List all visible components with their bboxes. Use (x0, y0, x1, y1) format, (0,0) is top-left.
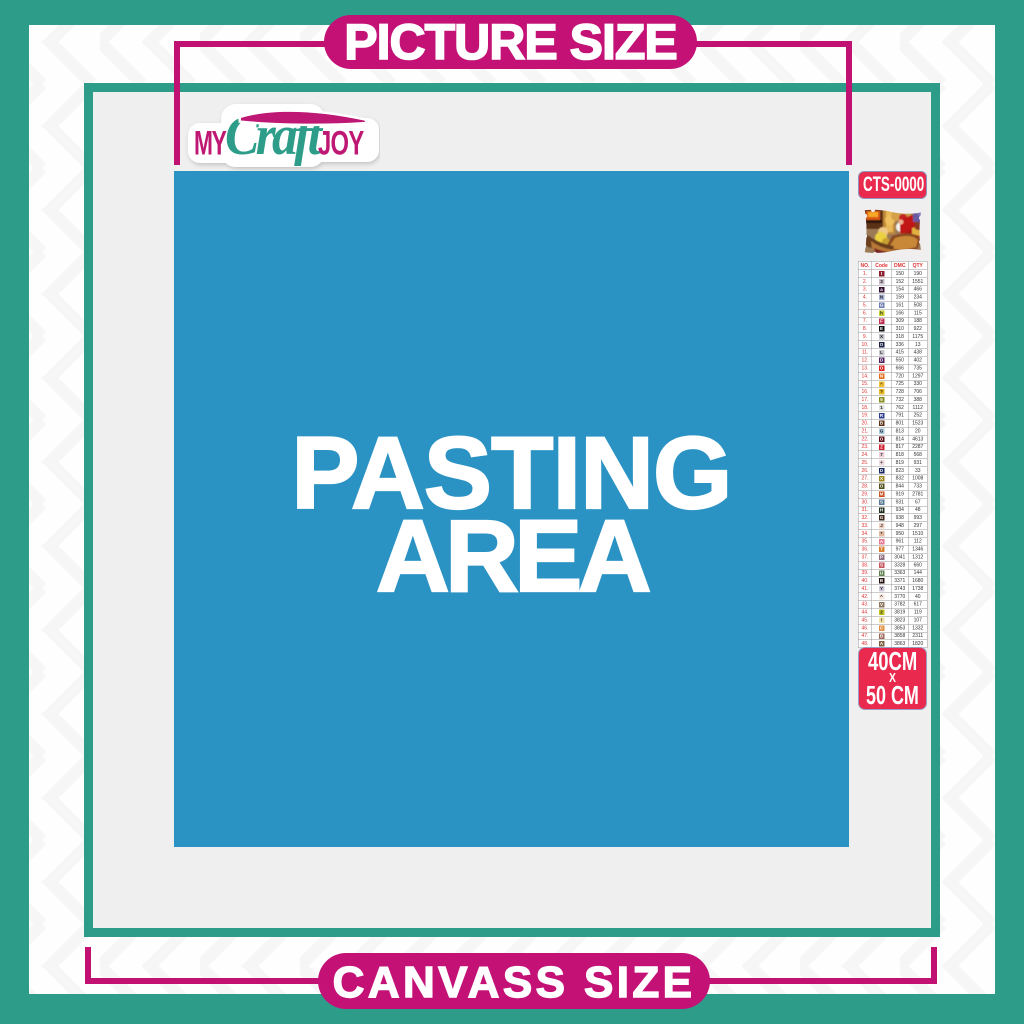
svg-text:JOY: JOY (318, 124, 365, 162)
svg-text:MY: MY (194, 125, 227, 163)
